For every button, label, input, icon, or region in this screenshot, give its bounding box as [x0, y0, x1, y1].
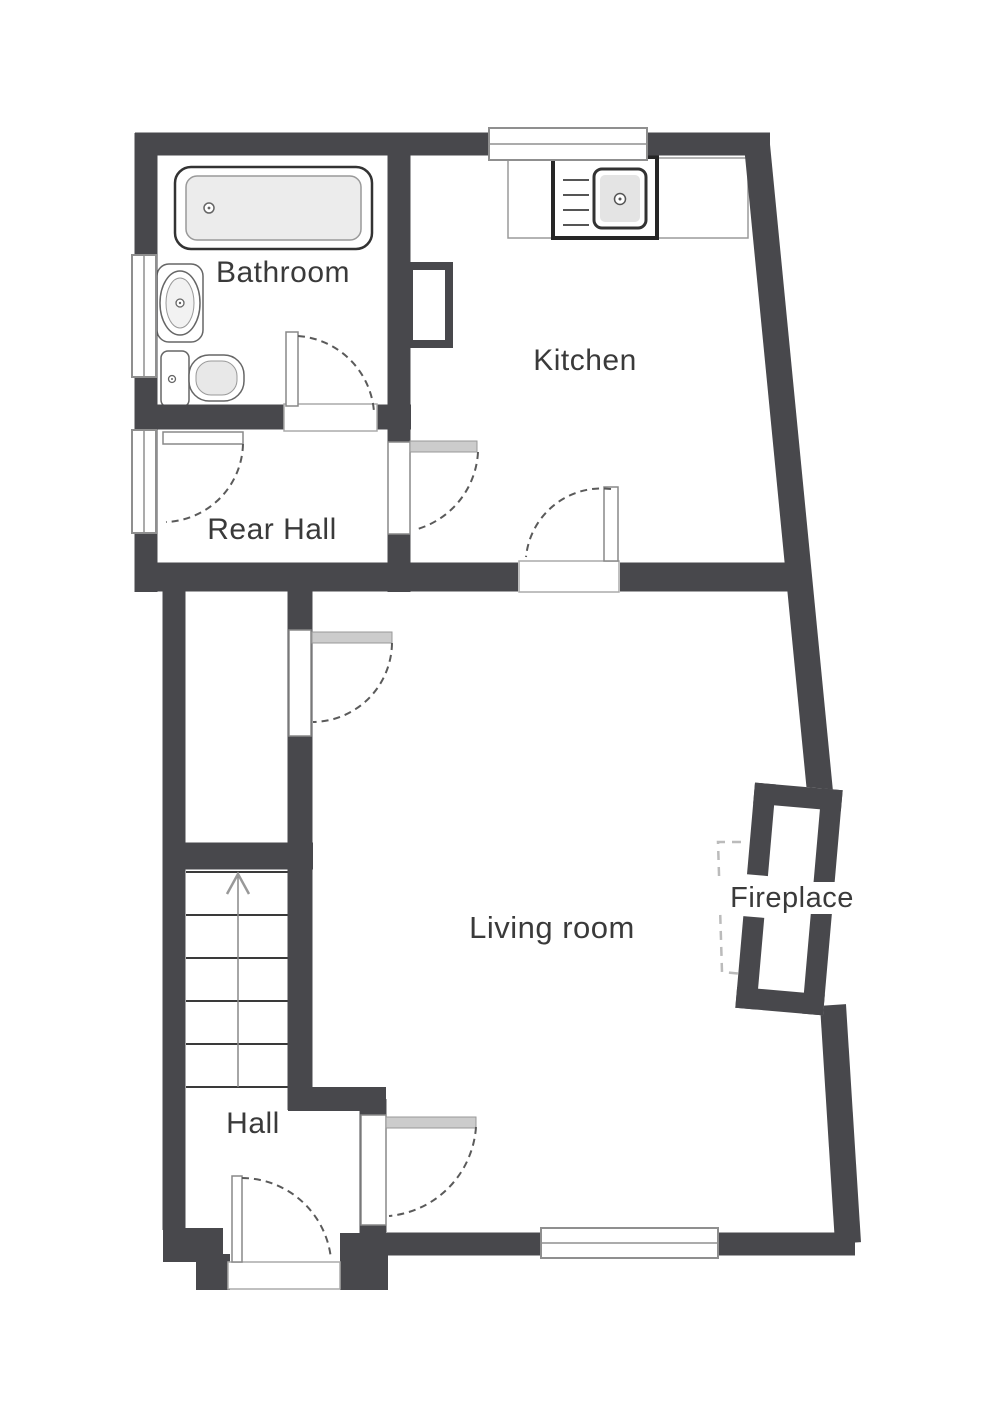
door-leaf-hall-living-room-lower — [361, 1115, 386, 1225]
door-leaf-rear-hall — [163, 432, 243, 444]
sink-tap-dot — [619, 198, 622, 201]
toilet — [161, 351, 244, 407]
room-label-fireplace: Fireplace — [730, 882, 854, 914]
door-leaf-rear-hall-kitchen — [388, 442, 410, 534]
room-label-bathroom: Bathroom — [216, 256, 350, 289]
open-door-bar-hall-upper — [312, 632, 392, 643]
room-label-rear-hall: Rear Hall — [207, 513, 337, 546]
window-bathroom — [132, 255, 156, 377]
door-leaf-kitchen-living-room — [604, 487, 618, 561]
floorplan-drawing: Bathroom Kitchen Rear Hall Living room F… — [0, 0, 1000, 1424]
window-rear-hall — [132, 430, 156, 533]
bathtub — [175, 167, 372, 249]
room-label-hall: Hall — [226, 1107, 280, 1140]
threshold-bathroom-door — [284, 404, 377, 431]
open-door-bar-kitchen — [410, 441, 477, 452]
wall-step-block-right — [340, 1233, 388, 1290]
window-living-room — [541, 1228, 718, 1258]
room-label-living-room: Living room — [469, 910, 635, 945]
window-kitchen — [489, 128, 647, 160]
door-leaf-bathroom — [286, 332, 298, 406]
door-leaf-hall-living-room-upper — [289, 630, 311, 736]
open-door-bar-hall-lower — [386, 1117, 476, 1128]
kitchen-wall-protrusion — [409, 266, 449, 344]
wall-step-block-left2 — [196, 1254, 230, 1290]
wash-basin — [157, 264, 203, 342]
kitchen-sink-unit — [553, 157, 657, 238]
floorplan-page: Bathroom Kitchen Rear Hall Living room F… — [0, 0, 1000, 1424]
door-leaf-front-door — [232, 1176, 242, 1262]
room-label-kitchen: Kitchen — [533, 344, 637, 377]
threshold-kitchen-living-room-door — [519, 561, 619, 592]
threshold-front-door — [228, 1262, 340, 1289]
wall-right-slanted-lower — [833, 1005, 848, 1243]
